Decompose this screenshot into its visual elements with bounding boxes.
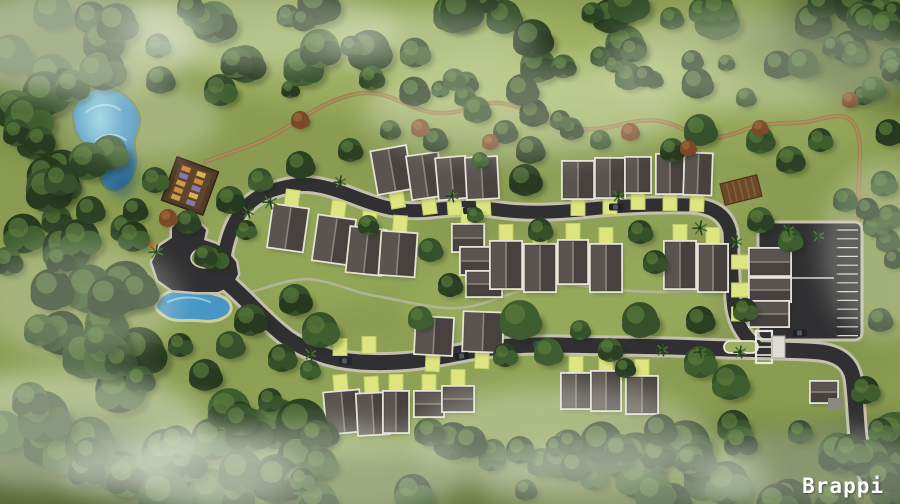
roof-east-slope: [573, 241, 587, 283]
roof-east-slope: [638, 158, 650, 192]
tree-highlight: [251, 170, 263, 182]
roof-east-slope: [506, 242, 521, 288]
palm-crown: [616, 194, 619, 197]
driveway: [599, 228, 613, 245]
tree-highlight: [220, 189, 234, 203]
driveway: [566, 224, 580, 241]
roof-east-slope: [606, 245, 621, 291]
tree-highlight: [126, 200, 138, 212]
stall-marker-dot: [837, 317, 839, 319]
tree-highlight: [30, 129, 44, 143]
tree-highlight: [618, 360, 628, 370]
tree-highlight: [171, 335, 183, 347]
tree-highlight: [161, 211, 170, 220]
palm-crown: [268, 200, 271, 203]
driveway: [422, 375, 436, 392]
driveway: [673, 225, 687, 242]
tree-highlight: [584, 4, 595, 15]
palm-crown: [450, 194, 453, 197]
tree-highlight: [228, 407, 244, 423]
house: [377, 230, 418, 280]
site-plan-canvas: [0, 0, 900, 504]
tree-highlight: [361, 217, 371, 227]
roof-west-slope: [563, 162, 578, 198]
palm-crown: [154, 250, 157, 253]
house: [697, 243, 729, 294]
watermark: Brappi: [802, 474, 884, 498]
roof-north-slope: [750, 279, 790, 290]
stall-marker-dot: [837, 335, 839, 337]
tree-highlight: [272, 347, 286, 361]
tree-highlight: [811, 130, 823, 142]
house: [748, 277, 792, 304]
car-roof: [459, 353, 464, 358]
fog-patch: [320, 12, 540, 72]
tree-highlight: [627, 306, 645, 324]
tree-highlight: [179, 212, 191, 224]
roof-west-slope: [684, 154, 698, 194]
car: [455, 352, 470, 360]
tree-highlight: [362, 68, 374, 80]
tree-highlight: [631, 222, 643, 234]
roof-west-slope: [596, 159, 610, 197]
tree-highlight: [513, 167, 529, 183]
tree-highlight: [238, 307, 254, 323]
roof-east-slope: [610, 159, 624, 197]
fog-patch: [60, 80, 220, 160]
tree-highlight: [505, 304, 525, 324]
tree-highlight: [750, 210, 763, 223]
house: [489, 240, 523, 291]
tree-highlight: [193, 362, 209, 378]
driveway: [451, 370, 465, 387]
car-roof: [342, 358, 348, 364]
tree-highlight: [871, 420, 883, 432]
palm-crown: [786, 228, 789, 231]
house: [557, 239, 589, 286]
tree-highlight: [496, 345, 508, 357]
driveway: [569, 357, 583, 374]
palm-crown: [698, 226, 701, 229]
house: [624, 156, 652, 195]
driveway: [631, 193, 645, 210]
roof-east-slope: [540, 245, 555, 291]
stall-marker-dot: [837, 326, 839, 328]
car-roof: [613, 205, 618, 210]
roof-west-slope: [491, 242, 506, 288]
roof-west-slope: [384, 392, 396, 432]
tree-highlight: [8, 218, 28, 238]
driveway: [732, 283, 749, 297]
tree-highlight: [688, 117, 704, 133]
tree-highlight: [646, 252, 658, 264]
tree-highlight: [284, 82, 293, 91]
roof-north-slope: [811, 382, 837, 392]
tree-highlight: [145, 170, 158, 183]
tree-highlight: [601, 340, 613, 352]
house: [589, 243, 623, 294]
aerial-site-plan-image: Brappi: [0, 0, 900, 504]
tree-highlight: [780, 149, 794, 163]
tree-highlight: [65, 223, 84, 242]
driveway: [389, 375, 403, 392]
palm-crown: [660, 348, 663, 351]
driveway: [732, 255, 749, 269]
roof-north-slope: [750, 249, 790, 262]
tree-highlight: [122, 225, 137, 240]
tree-highlight: [293, 113, 302, 122]
roof-north-slope: [453, 225, 483, 238]
roof-west-slope: [559, 241, 573, 283]
tree-highlight: [6, 122, 20, 136]
tree-highlight: [879, 122, 892, 135]
driveway: [362, 337, 376, 354]
roof-west-slope: [626, 158, 638, 192]
palm-crown: [698, 350, 701, 353]
tree-highlight: [290, 154, 304, 168]
tree-highlight: [754, 122, 762, 130]
tree-highlight: [411, 308, 423, 320]
tree-highlight: [682, 142, 690, 150]
tree-highlight: [220, 334, 234, 348]
palm-crown: [338, 180, 341, 183]
house: [523, 243, 557, 294]
driveway: [499, 225, 513, 242]
palm-crown: [734, 240, 737, 243]
tree-highlight: [421, 240, 433, 252]
tree-highlight: [717, 368, 735, 386]
driveway: [571, 199, 585, 216]
roof-west-slope: [591, 245, 606, 291]
corner-pavilion-patio: [828, 398, 844, 409]
tree-highlight: [736, 300, 748, 312]
tree-highlight: [531, 220, 543, 232]
roof-south-slope: [750, 290, 790, 301]
tree-highlight: [48, 167, 64, 183]
car: [793, 330, 807, 337]
tree-highlight: [261, 390, 273, 402]
car: [609, 204, 623, 211]
tree-highlight: [239, 222, 249, 232]
tree-highlight: [307, 316, 325, 334]
roof-east-slope: [680, 242, 695, 288]
tree-highlight: [469, 209, 477, 217]
roof-north-slope: [415, 392, 443, 404]
driveway: [393, 215, 408, 233]
roof-east-slope: [697, 154, 711, 194]
roof-west-slope: [525, 245, 540, 291]
tree-highlight: [663, 140, 675, 152]
car-roof: [797, 331, 802, 336]
driveway: [706, 228, 720, 245]
palm-crown: [816, 234, 819, 237]
driveway: [333, 374, 348, 392]
driveway: [663, 194, 677, 211]
tree-highlight: [441, 275, 453, 287]
house: [266, 203, 310, 255]
roof-east-slope: [578, 162, 593, 198]
tree-highlight: [197, 247, 208, 258]
tree-highlight: [573, 322, 583, 332]
tree-highlight: [690, 309, 704, 323]
house: [561, 160, 595, 201]
tree-highlight: [721, 413, 737, 429]
tree-highlight: [208, 77, 224, 93]
guardhouse-canopy: [772, 336, 785, 358]
tree-highlight: [283, 287, 299, 303]
palm-crown: [246, 210, 249, 213]
tree-highlight: [303, 362, 313, 372]
roof-west-slope: [463, 312, 483, 351]
house: [382, 390, 410, 435]
tree-highlight: [80, 199, 94, 213]
roof-south-slope: [750, 262, 790, 275]
palm-crown: [308, 352, 311, 355]
tree-highlight: [341, 140, 353, 152]
driveway: [364, 376, 379, 394]
roof-east-slope: [713, 245, 727, 291]
roof-east-slope: [396, 392, 408, 432]
roof-west-slope: [699, 245, 713, 291]
tree-highlight: [855, 379, 869, 393]
palm-crown: [738, 350, 741, 353]
tree-highlight: [538, 341, 552, 355]
